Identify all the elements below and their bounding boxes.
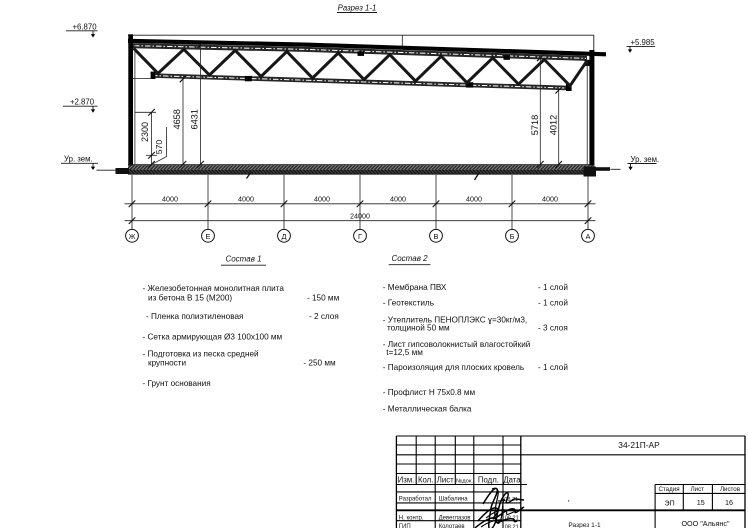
svg-text:- 2 слоя: - 2 слоя <box>309 312 339 321</box>
svg-text:Г: Г <box>358 232 362 241</box>
svg-text:Б: Б <box>510 232 515 241</box>
svg-text:- Геотекстиль: - Геотекстиль <box>383 298 434 307</box>
svg-text:- 150 мм: - 150 мм <box>307 293 340 302</box>
svg-text:Д: Д <box>281 232 286 241</box>
svg-text:- 1 слой: - 1 слой <box>538 363 568 372</box>
svg-text:Девеглазов: Девеглазов <box>439 516 471 522</box>
svg-text:- Пленка полиэтиленовая: - Пленка полиэтиленовая <box>146 312 243 321</box>
svg-text:15: 15 <box>697 498 705 507</box>
svg-text:- Подготовка из песка средней: - Подготовка из песка средней <box>143 350 259 359</box>
svg-text:Ур. зем.: Ур. зем. <box>64 155 93 164</box>
svg-text:Лист: Лист <box>691 486 705 493</box>
svg-text:Шабалина: Шабалина <box>439 496 469 502</box>
svg-text:Разрез 1-1: Разрез 1-1 <box>568 522 601 528</box>
svg-text:24000: 24000 <box>350 212 370 221</box>
svg-text:Ур. зем.: Ур. зем. <box>631 155 660 164</box>
svg-text:крупности: крупности <box>148 359 186 368</box>
svg-text:Состав 2: Состав 2 <box>391 254 428 263</box>
svg-text:5718: 5718 <box>530 115 540 135</box>
svg-text:А: А <box>586 232 591 241</box>
svg-text:Е: Е <box>206 232 211 241</box>
svg-text:- 250 мм: - 250 мм <box>303 359 336 368</box>
svg-text:- 3 слоя: - 3 слоя <box>538 323 568 332</box>
svg-text:+2.870: +2.870 <box>70 98 95 107</box>
svg-text:34-21П-АР: 34-21П-АР <box>618 440 660 450</box>
svg-text:ГИП: ГИП <box>399 524 411 528</box>
svg-text:4000: 4000 <box>162 195 178 204</box>
svg-text:Листов: Листов <box>720 486 741 493</box>
svg-text:4000: 4000 <box>466 195 482 204</box>
svg-text:08.21: 08.21 <box>505 524 519 528</box>
svg-text:6431: 6431 <box>190 109 200 129</box>
svg-text:Состав 1: Состав 1 <box>225 255 261 264</box>
svg-text:толщиной 50 мм: толщиной 50 мм <box>387 323 450 332</box>
svg-text:4000: 4000 <box>542 195 558 204</box>
svg-text:Дата: Дата <box>503 475 521 484</box>
svg-text:В: В <box>434 232 439 241</box>
svg-text:4012: 4012 <box>549 115 559 135</box>
svg-text:- 1 слой: - 1 слой <box>538 283 568 292</box>
svg-text:- Сетка армирующая Ø3 100х100: - Сетка армирующая Ø3 100х100 мм <box>143 333 283 342</box>
svg-text:Ж: Ж <box>129 232 136 241</box>
svg-text:- Профлист Н 75х0.8 мм: - Профлист Н 75х0.8 мм <box>383 388 476 397</box>
svg-text:№док.: №док. <box>456 479 473 485</box>
svg-text:- 1 слой: - 1 слой <box>538 298 568 307</box>
svg-text:4000: 4000 <box>238 195 254 204</box>
svg-text:Лист: Лист <box>437 475 454 484</box>
svg-text:4000: 4000 <box>314 195 330 204</box>
svg-text:ООО "Альянс": ООО "Альянс" <box>681 519 730 528</box>
svg-text:+5.985: +5.985 <box>631 38 656 47</box>
svg-text:Разработал: Разработал <box>399 496 432 502</box>
svg-text:- Мембрана ПВХ: - Мембрана ПВХ <box>383 283 447 292</box>
svg-text:из бетона В 15 (М200): из бетона В 15 (М200) <box>148 293 232 302</box>
svg-text:4658: 4658 <box>172 109 182 129</box>
svg-text:Изм.: Изм. <box>398 475 415 484</box>
svg-text:- Железобетонная монолитная п: - Железобетонная монолитная плита <box>143 284 285 293</box>
svg-text:Стадия: Стадия <box>658 486 679 493</box>
svg-text:Н. контр.: Н. контр. <box>399 516 424 522</box>
svg-text:+6.870: +6.870 <box>73 23 98 32</box>
svg-text:ЭП: ЭП <box>664 498 674 507</box>
svg-text:Разрез 1-1: Разрез 1-1 <box>338 4 377 13</box>
svg-text:- Пароизоляция для плоских кро: - Пароизоляция для плоских кровель <box>383 363 524 372</box>
svg-text:4000: 4000 <box>390 195 406 204</box>
svg-text:Колотаев: Колотаев <box>439 524 465 528</box>
svg-text:- Грунт основания: - Грунт основания <box>143 379 211 388</box>
svg-text:Кол.: Кол. <box>418 475 433 484</box>
svg-text:16: 16 <box>725 498 733 507</box>
svg-text:570: 570 <box>154 140 164 155</box>
svg-text:Подл.: Подл. <box>478 475 499 484</box>
svg-text:t=12,5 мм: t=12,5 мм <box>386 348 423 357</box>
svg-text:2300: 2300 <box>140 122 150 142</box>
svg-text:- Металлическая балка: - Металлическая балка <box>383 404 472 413</box>
